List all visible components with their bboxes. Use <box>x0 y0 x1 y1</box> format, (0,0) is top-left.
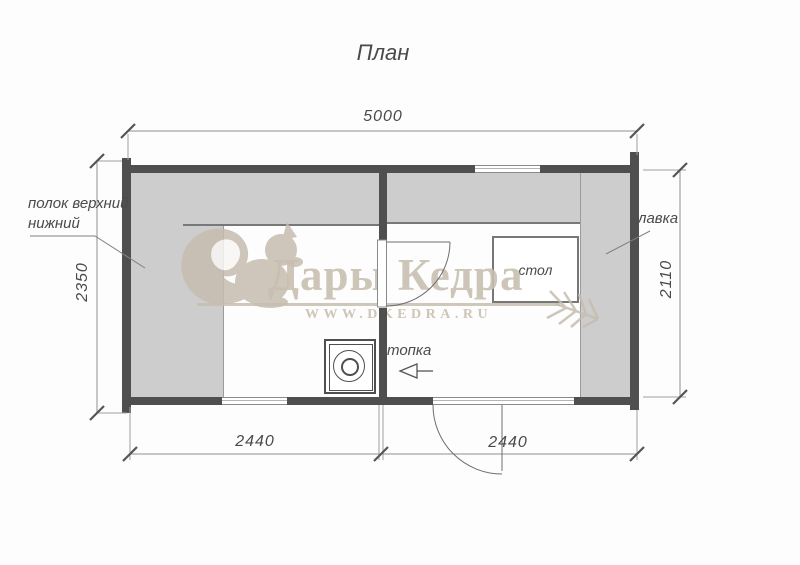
dimension-left-height: 2350 <box>74 232 92 332</box>
floor-plan-canvas: План 5000 2350 2110 2440 2440 полок верх… <box>0 0 800 565</box>
dimension-lines <box>97 131 680 454</box>
dimension-top-width: 5000 <box>333 108 433 126</box>
drawing-lines <box>0 0 800 565</box>
extension-lines <box>97 134 686 460</box>
label-stove: топка <box>387 342 431 359</box>
label-shelf-upper: полок верхний <box>28 195 128 212</box>
leader-bench <box>606 231 650 254</box>
dimension-bottom-left-width: 2440 <box>205 433 305 451</box>
dimension-bottom-right-width: 2440 <box>458 434 558 452</box>
dimension-ticks <box>90 124 687 461</box>
interior-door <box>378 240 451 307</box>
leader-lines <box>30 231 650 268</box>
label-shelf-lower: нижний <box>28 215 80 232</box>
dimension-right-height: 2110 <box>658 229 676 329</box>
stove-arrow-icon <box>400 364 433 378</box>
label-bench: лавка <box>638 210 678 227</box>
